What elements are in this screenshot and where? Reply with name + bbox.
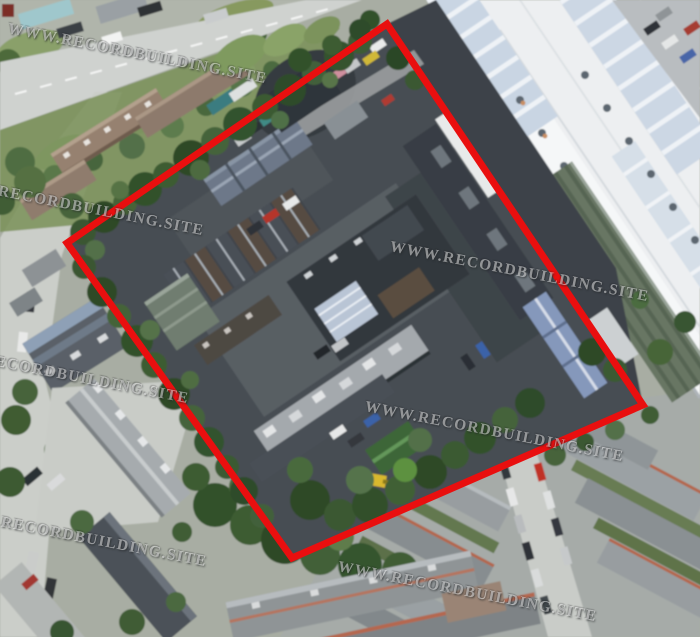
screenshot-root: WWW.RECORDBUILDING.SITEWWW.RECORDBUILDIN… (0, 0, 700, 637)
aerial-photo (0, 0, 700, 637)
